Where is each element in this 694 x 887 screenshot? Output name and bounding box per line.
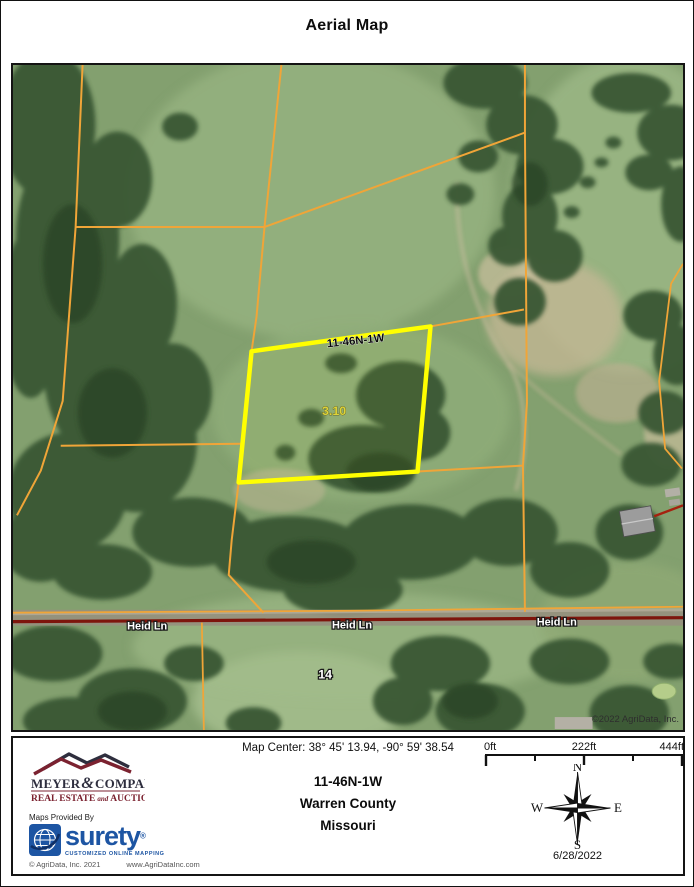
- compass-rose: N S E W: [530, 764, 625, 850]
- page-title: Aerial Map: [1, 17, 693, 35]
- logo-name-left: MEYER: [31, 776, 81, 791]
- surety-tagline: CUSTOMIZED ONLINE MAPPING: [65, 851, 165, 857]
- compass-n-label: N: [573, 764, 583, 774]
- location-township: 11-46N-1W: [228, 771, 468, 793]
- parcel-acreage-label: 3.10: [322, 404, 346, 418]
- provider-copyright: © AgriData, Inc. 2021: [29, 860, 100, 869]
- svg-text:REAL ESTATEandAUCTIONS: REAL ESTATEandAUCTIONS: [31, 794, 145, 804]
- location-county: Warren County: [228, 793, 468, 815]
- scale-start-label: 0ft: [484, 741, 551, 753]
- registered-mark: ®: [140, 832, 146, 841]
- surety-globe-icon: [29, 824, 61, 856]
- location-state: Missouri: [228, 815, 468, 837]
- compass-e-label: E: [614, 800, 622, 815]
- logo-tagline-and: and: [97, 795, 108, 803]
- map-copyright-label: ©2022 AgriData, Inc.: [592, 714, 679, 725]
- road-label-1: Heid Ln: [127, 621, 167, 633]
- scale-mid-label: 222ft: [551, 741, 618, 753]
- compass-s-label: S: [574, 837, 581, 850]
- compass-rose-icon: N S E W: [530, 764, 625, 850]
- logo-tagline-left: REAL ESTATE: [31, 794, 95, 804]
- surety-brand-name: surety: [65, 821, 140, 851]
- aerial-map-svg: 11-46N-1W 3.10 Heid Ln Heid Ln Heid Ln 1…: [13, 65, 683, 730]
- surety-provider-block: Maps Provided By surety® CUSTOMIZED ONLI…: [29, 813, 219, 869]
- location-block: 11-46N-1W Warren County Missouri: [228, 771, 468, 837]
- compass-w-label: W: [531, 800, 544, 815]
- road-label-2: Heid Ln: [332, 620, 372, 632]
- provider-website: www.AgriDataInc.com: [126, 860, 199, 869]
- map-date: 6/28/2022: [530, 850, 625, 862]
- scale-end-label: 444ft: [617, 741, 684, 753]
- meyer-company-logo: MEYER&COMPANY REAL ESTATEandAUCTIONS: [27, 747, 145, 805]
- road-label-3: Heid Ln: [537, 617, 577, 629]
- section-number-label: 14: [318, 667, 332, 681]
- logo-name-right: COMPANY: [95, 776, 145, 791]
- aerial-map-canvas: 11-46N-1W 3.10 Heid Ln Heid Ln Heid Ln 1…: [11, 63, 685, 732]
- meyer-logo-svg: MEYER&COMPANY REAL ESTATEandAUCTIONS: [27, 747, 145, 805]
- logo-tagline-right: AUCTIONS: [110, 794, 145, 804]
- logo-ampersand: &: [81, 775, 94, 792]
- aerial-map-page: Aerial Map: [0, 0, 694, 887]
- svg-text:MEYER&COMPANY: MEYER&COMPANY: [31, 775, 145, 792]
